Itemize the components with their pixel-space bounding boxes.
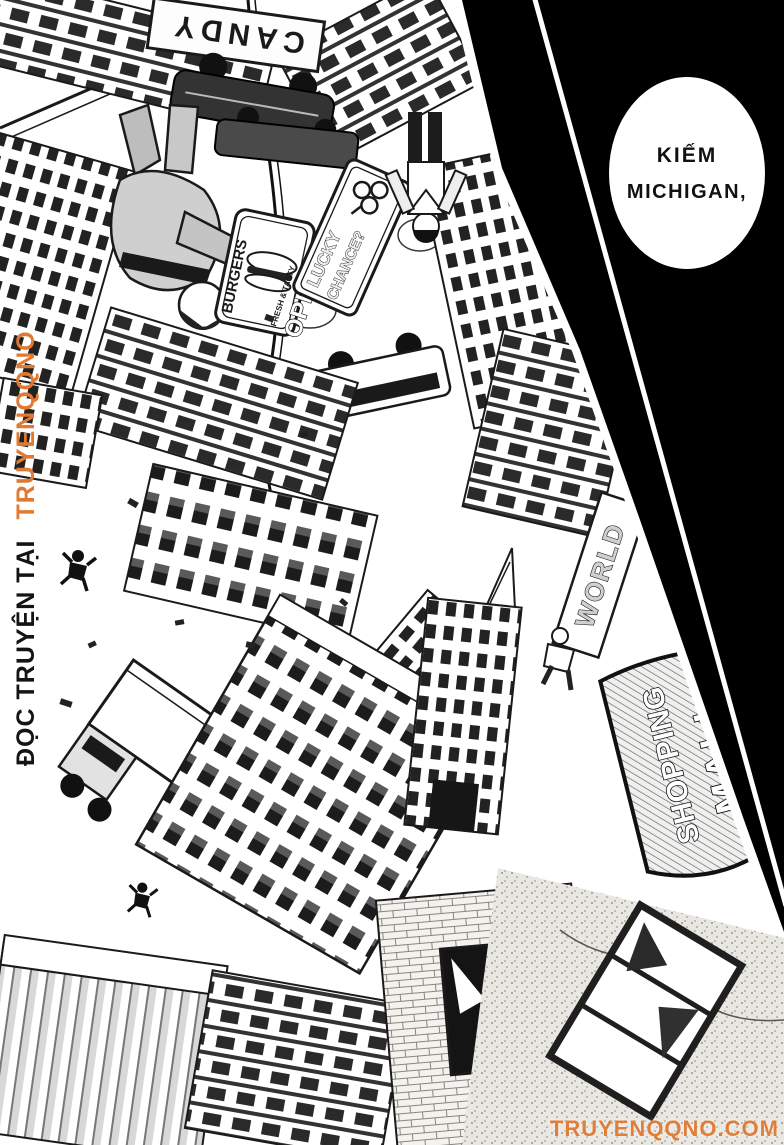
figure-head xyxy=(552,628,568,644)
suit-man-leg xyxy=(408,112,422,162)
speech-bubble-line2: MICHIGAN, xyxy=(627,181,747,203)
speech-bubble xyxy=(609,77,765,269)
manga-page: CANDY BURGERS FRESH & TASTY OPEN xyxy=(0,0,784,1145)
man-leg xyxy=(165,105,198,173)
watermark-vertical: ĐỌC TRUYỆN TẠI TRUYENQQNO xyxy=(12,366,41,766)
building-doorway xyxy=(428,779,479,832)
figure-head xyxy=(137,883,147,893)
speech-bubble-line1: KIẾM xyxy=(657,144,718,167)
suit-man-leg xyxy=(428,112,442,162)
footer-site-url: TRUYENQQNO.COM xyxy=(550,1116,779,1142)
manga-panel-artwork: CANDY BURGERS FRESH & TASTY OPEN xyxy=(0,0,784,1145)
figure-head xyxy=(72,550,84,562)
watermark-prefix-text: ĐỌC TRUYỆN TẠI xyxy=(12,540,40,767)
watermark-site-name: TRUYENQQNO xyxy=(12,330,40,519)
